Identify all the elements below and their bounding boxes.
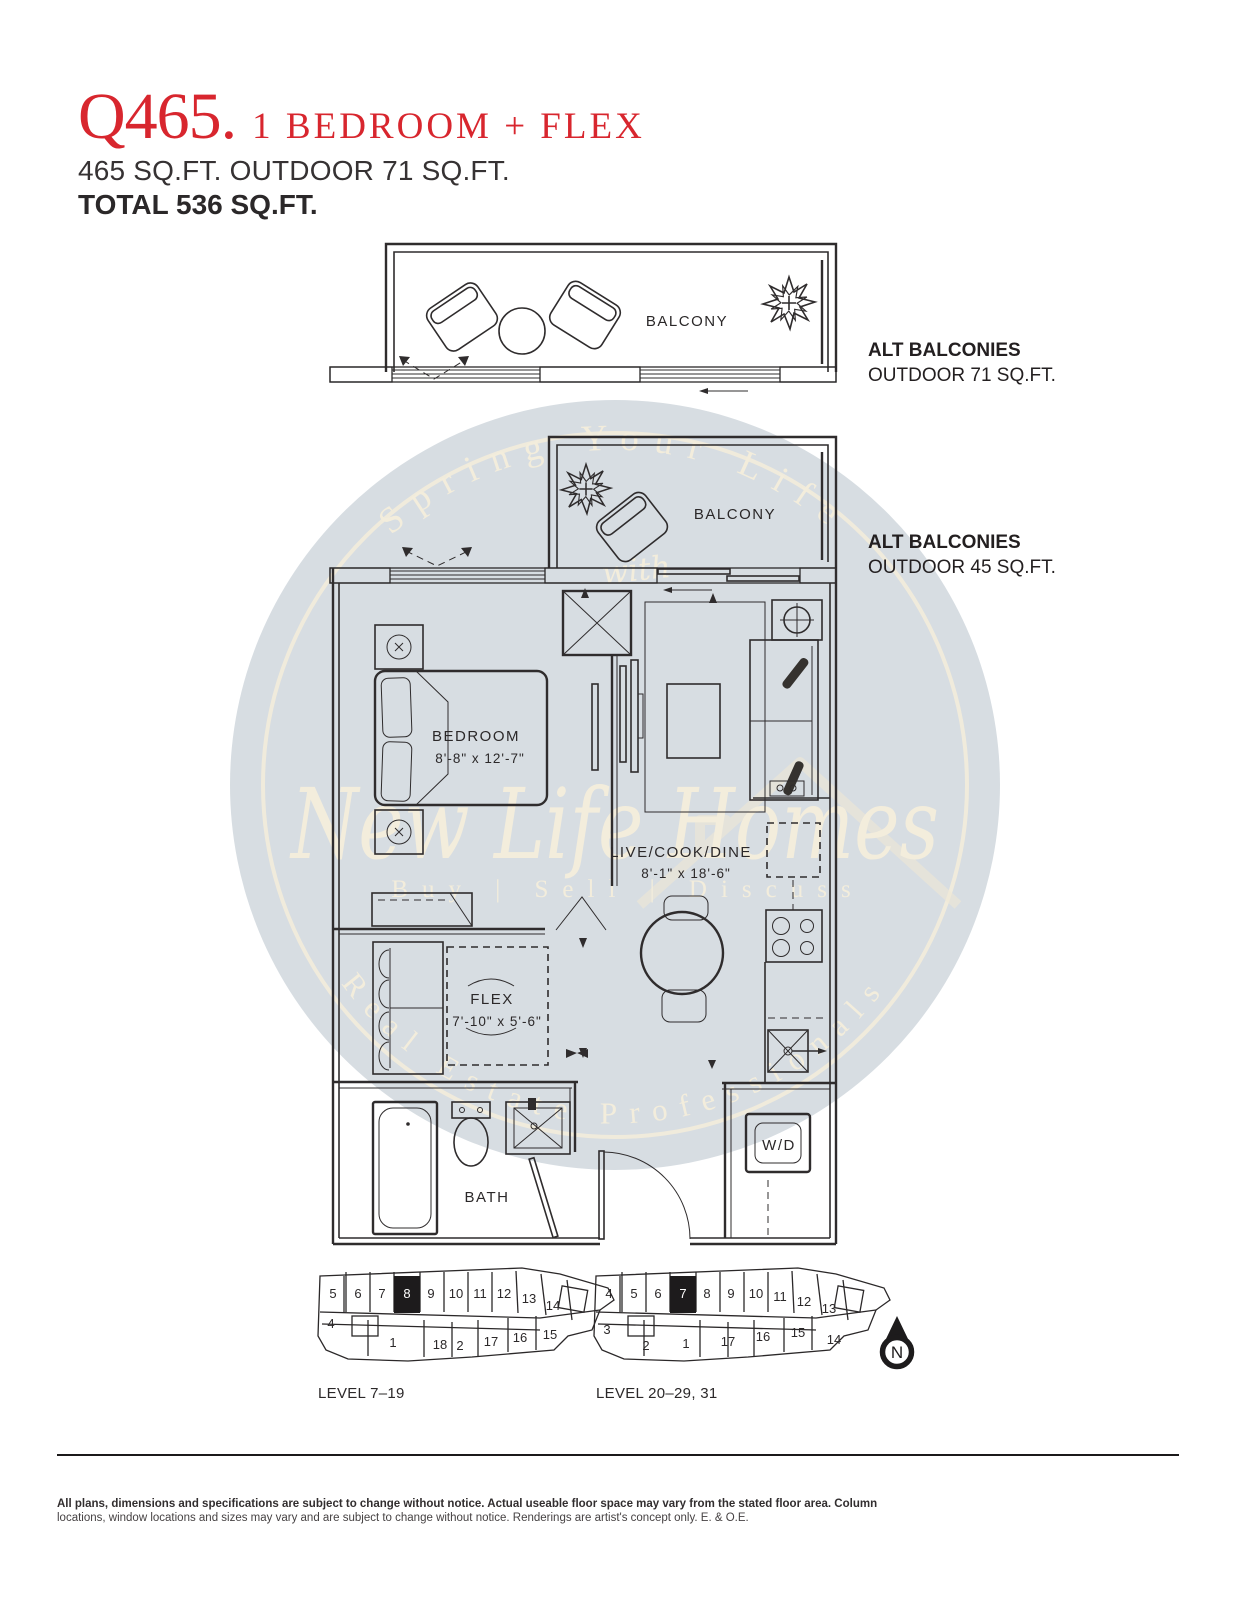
keyplan-unit-number: 4 (605, 1286, 612, 1301)
keyplan-level-7-19: 5 6 7 8 9 10 11 12 13 14 4 1 18 2 17 16 … (318, 1268, 614, 1402)
window-lines (392, 370, 780, 378)
living-dims: 8'-1" x 18'-6" (641, 866, 731, 881)
floorplan-drawing: Spring Your Life with New Life Homes Buy… (0, 0, 1236, 1600)
keyplan-unit-number: 3 (603, 1322, 610, 1337)
keyplan-unit-number: 10 (449, 1286, 463, 1301)
alt-balconies-annotation-1: ALT BALCONIES OUTDOOR 71 SQ.FT. (868, 338, 1128, 388)
keyplan-unit-number: 9 (427, 1286, 434, 1301)
keyplan-unit-number: 1 (389, 1335, 396, 1350)
tree-icon (763, 277, 815, 329)
north-compass-icon: N (883, 1316, 912, 1367)
bedroom-dims: 8'-8" x 12'-7" (435, 751, 525, 766)
keyplan-unit-number: 12 (497, 1286, 511, 1301)
elevator-hatch (834, 1286, 863, 1312)
total-area-line: TOTAL 536 SQ.FT. (78, 189, 318, 221)
watermark-script-main: New Life Homes (289, 768, 939, 881)
keyplan-unit-number-highlighted: 8 (403, 1286, 410, 1301)
keyplan-unit-number: 14 (546, 1298, 560, 1313)
alt-balconies-title: ALT BALCONIES (868, 530, 1128, 555)
slide-arrow-icon (699, 388, 708, 394)
keyplan-unit-number: 16 (513, 1330, 527, 1345)
unit-code: Q465. (78, 84, 236, 150)
keyplan-unit-number: 2 (642, 1338, 649, 1353)
disclaimer-line-2: locations, window locations and sizes ma… (57, 1511, 1187, 1525)
keyplan-unit-number: 18 (433, 1337, 447, 1352)
keyplan-caption: LEVEL 7–19 (318, 1385, 405, 1402)
balcony-label: BALCONY (646, 313, 728, 330)
keyplan-unit-number: 11 (773, 1289, 787, 1304)
keyplan-unit-number: 13 (822, 1301, 836, 1316)
balcony-label: BALCONY (694, 506, 776, 523)
keyplan-caption: LEVEL 20–29, 31 (596, 1385, 718, 1402)
keyplan-unit-number: 5 (329, 1286, 336, 1301)
balcony-table-icon (499, 308, 545, 354)
balcony-chair-icon (546, 278, 623, 352)
disclaimer-line-1: All plans, dimensions and specifications… (57, 1497, 1187, 1511)
keyplan-unit-number: 13 (522, 1291, 536, 1306)
keyplan-unit-number: 6 (354, 1286, 361, 1301)
keyplan-unit-number: 16 (756, 1329, 770, 1344)
footer-divider (57, 1454, 1179, 1456)
elevator-hatch (558, 1286, 587, 1312)
keyplan-unit-number: 4 (327, 1316, 334, 1331)
keyplan-unit-number: 17 (721, 1334, 735, 1349)
keyplan-unit-number: 17 (484, 1334, 498, 1349)
keyplan-unit-number: 9 (727, 1286, 734, 1301)
page-title: Q465. 1 BEDROOM + FLEX (78, 84, 645, 150)
bath-label: BATH (465, 1189, 510, 1206)
keyplan-unit-number: 15 (543, 1327, 557, 1342)
disclaimer: All plans, dimensions and specifications… (57, 1497, 1187, 1525)
keyplan-unit-number: 5 (630, 1286, 637, 1301)
wd-label: W/D (762, 1137, 796, 1154)
watermark: Spring Your Life with New Life Homes Buy… (230, 400, 1000, 1170)
keyplan-unit-number: 6 (654, 1286, 661, 1301)
flex-label: FLEX (470, 991, 514, 1008)
north-label: N (891, 1343, 903, 1362)
keyplan-unit-number: 1 (682, 1336, 689, 1351)
alt-balconies-area: OUTDOOR 45 SQ.FT. (868, 555, 1128, 580)
bath-door-leaf (529, 1158, 558, 1238)
keyplan-unit-number: 8 (703, 1286, 710, 1301)
area-line: 465 SQ.FT. OUTDOOR 71 SQ.FT. (78, 155, 510, 187)
alt-balconies-annotation-2: ALT BALCONIES OUTDOOR 45 SQ.FT. (868, 530, 1128, 580)
top-balcony: BALCONY (330, 244, 836, 394)
keyplan-level-20-31: 4 5 6 7 8 9 10 11 12 13 3 2 1 17 16 15 1… (594, 1268, 890, 1402)
keyplan-unit-number: 12 (797, 1294, 811, 1309)
alt-balconies-area: OUTDOOR 71 SQ.FT. (868, 363, 1128, 388)
keyplan-unit-number: 11 (473, 1286, 487, 1301)
keyplan-unit-number: 15 (791, 1325, 805, 1340)
keyplan-unit-number: 7 (378, 1286, 385, 1301)
balcony-chair-icon (423, 279, 501, 354)
keyplan-unit-number-highlighted: 7 (679, 1286, 686, 1301)
alt-balconies-title: ALT BALCONIES (868, 338, 1128, 363)
keyplan-unit-number: 2 (456, 1338, 463, 1353)
floorplan-page: Spring Your Life with New Life Homes Buy… (0, 0, 1236, 1600)
keyplan-unit-number: 14 (827, 1332, 841, 1347)
living-label: LIVE/COOK/DINE (610, 844, 752, 861)
watermark-tagline: Buy | Sell | Discuss (391, 876, 864, 903)
flex-dims: 7'-10" x 5'-6" (452, 1014, 542, 1029)
unit-type: 1 BEDROOM + FLEX (252, 105, 645, 148)
bathtub (373, 1102, 437, 1234)
keyplan-unit-number: 10 (749, 1286, 763, 1301)
bedroom-label: BEDROOM (432, 728, 520, 745)
